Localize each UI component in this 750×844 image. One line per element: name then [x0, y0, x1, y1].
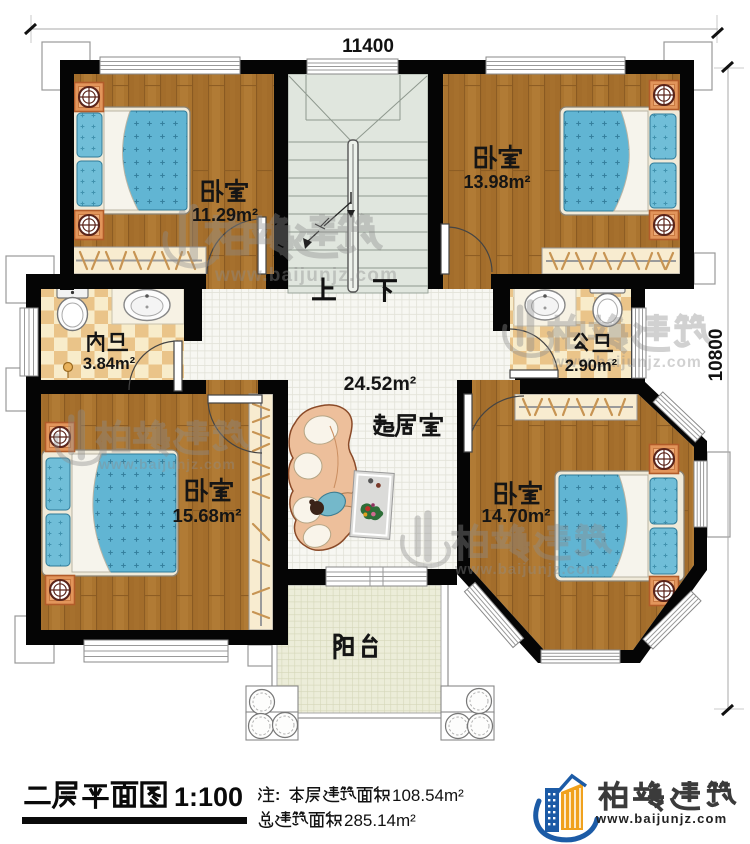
svg-text:15.68m²: 15.68m² [173, 505, 242, 526]
svg-text:11400: 11400 [342, 36, 394, 57]
svg-text:3.84m²: 3.84m² [83, 355, 136, 373]
svg-text::: : [275, 787, 280, 804]
svg-text:24.52m²: 24.52m² [344, 373, 417, 395]
svg-text:13.98m²: 13.98m² [463, 172, 530, 192]
svg-text:108.54m²: 108.54m² [392, 786, 464, 805]
svg-text:2.90m²: 2.90m² [565, 357, 618, 375]
svg-text:14.70m²: 14.70m² [482, 505, 551, 526]
svg-text:www.baijunjz.com: www.baijunjz.com [454, 561, 600, 578]
svg-text:10800: 10800 [706, 329, 727, 382]
svg-text:www.baijunjz.com: www.baijunjz.com [214, 265, 398, 286]
svg-text:1:100: 1:100 [174, 782, 243, 812]
svg-text:www.baijunjz.com: www.baijunjz.com [595, 811, 727, 826]
svg-text:285.14m²: 285.14m² [344, 811, 416, 830]
svg-text:11.29m²: 11.29m² [192, 205, 258, 225]
svg-text:www.baijunjz.com: www.baijunjz.com [98, 456, 236, 472]
